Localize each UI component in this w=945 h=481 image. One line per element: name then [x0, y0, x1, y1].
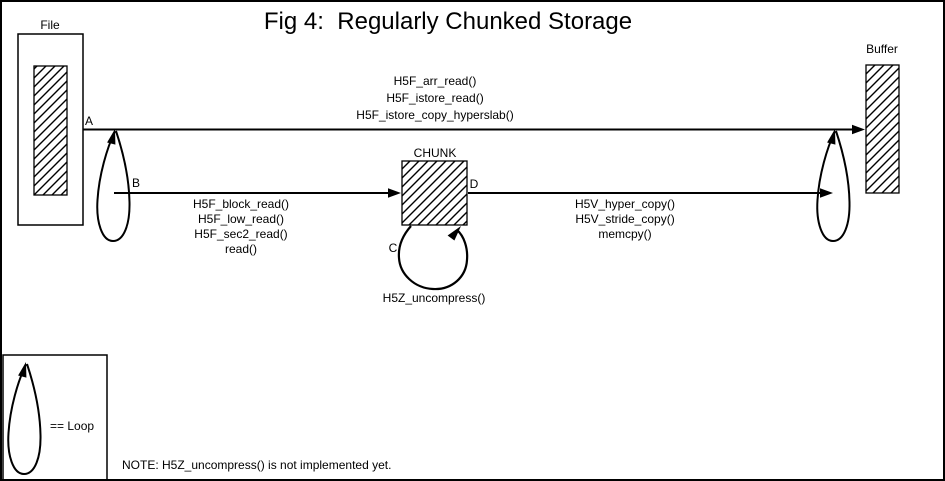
function-label: read() [193, 242, 289, 257]
function-label: H5F_sec2_read() [193, 227, 289, 242]
function-label: H5V_stride_copy() [575, 212, 675, 227]
arrow-b-letter: B [132, 176, 140, 190]
legend-label: == Loop [50, 419, 94, 433]
function-label: memcpy() [575, 227, 675, 242]
arrow-b-functions: H5F_block_read() H5F_low_read() H5F_sec2… [193, 197, 289, 257]
loop-buffer-icon [817, 129, 849, 241]
arrow-a [83, 125, 865, 134]
function-label: H5F_istore_copy_hyperslab() [356, 107, 513, 124]
arrow-d-functions: H5V_hyper_copy() H5V_stride_copy() memcp… [575, 197, 675, 242]
chunk-hatch [402, 161, 467, 225]
arrow-d-letter: D [470, 177, 479, 191]
arrow-a-letter: A [85, 114, 93, 128]
arrow-b-head-icon [388, 188, 401, 197]
function-label: H5F_arr_read() [356, 73, 513, 90]
chunk-label: CHUNK [414, 146, 457, 160]
buffer-label: Buffer [866, 42, 898, 56]
figure-canvas: Fig 4: Regularly Chunked Storage File Bu… [0, 0, 945, 481]
function-label: H5F_istore_read() [356, 90, 513, 107]
loop-c-letter: C [389, 241, 398, 255]
arrow-d-head-icon [820, 188, 833, 197]
file-data-hatch [34, 66, 67, 195]
note-text: NOTE: H5Z_uncompress() is not implemente… [122, 458, 391, 472]
figure-title: Fig 4: Regularly Chunked Storage [264, 8, 632, 36]
file-label: File [40, 18, 59, 32]
function-label: H5F_block_read() [193, 197, 289, 212]
function-label: H5F_low_read() [193, 212, 289, 227]
legend-loop-icon [8, 362, 40, 474]
buffer-data-hatch [866, 65, 899, 193]
loop-c-function: H5Z_uncompress() [383, 291, 486, 305]
loop-a-icon [97, 129, 129, 241]
arrow-a-head-icon [852, 125, 865, 134]
legend-box [3, 355, 107, 481]
function-label: H5V_hyper_copy() [575, 197, 675, 212]
arrow-a-functions: H5F_arr_read() H5F_istore_read() H5F_ist… [356, 73, 513, 124]
chunk-self-loop [399, 226, 467, 289]
